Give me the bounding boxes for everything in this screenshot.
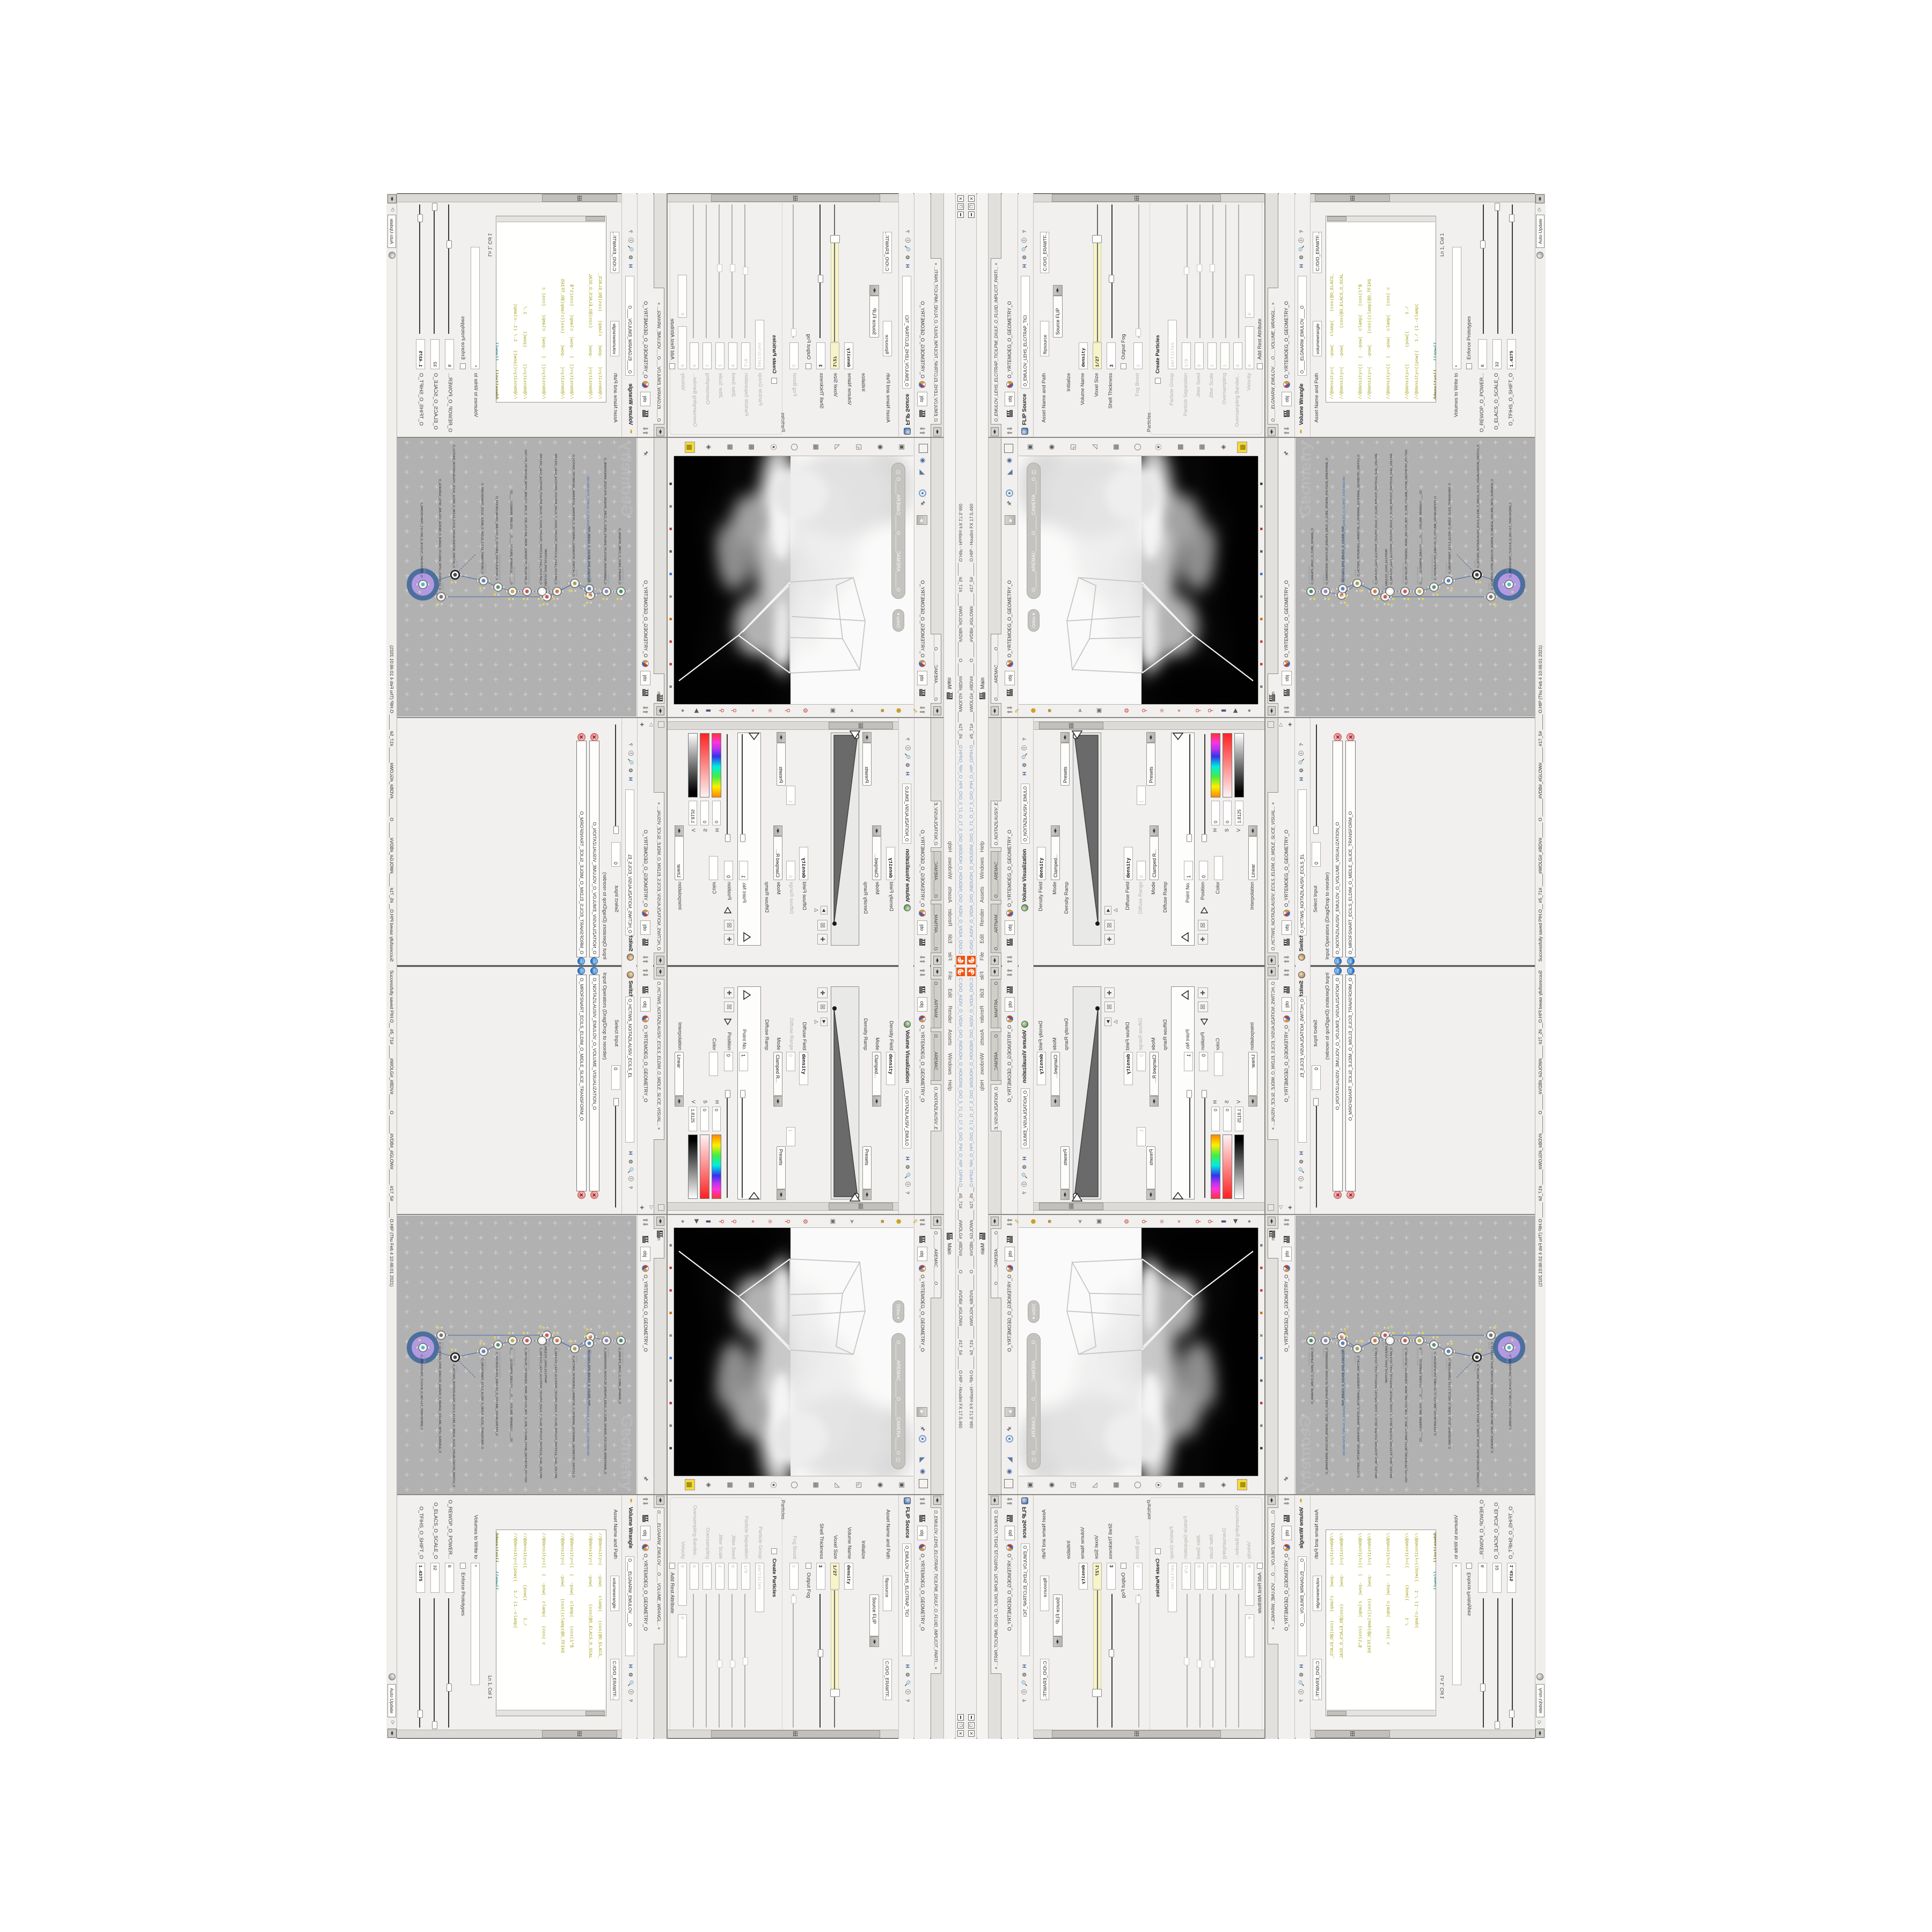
svg-text:Switch: Switch (575, 569, 578, 576)
svg-text:FLIP Source: FLIP Source (543, 1348, 545, 1362)
svg-text:VDB from Polygons: VDB from Polygons (528, 562, 530, 584)
svg-text:Box: Box (1340, 1350, 1342, 1355)
svg-text:Switch: Switch (1474, 560, 1476, 568)
svg-text:O______ELGNARW_EMULOV____O____: O______ELGNARW_EMULOV____O____VOLUME_WRA… (1419, 1348, 1423, 1441)
svg-text:Box: Box (1340, 577, 1342, 582)
svg-text:VolumeVisualizationMix: VolumeVisualizationMix (1431, 554, 1433, 580)
svg-text:O_HCTIWS_NOITAZILAUSIV_ECILS_E: O_HCTIWS_NOITAZILAUSIV_ECILS_ELDIM_O_MID… (1477, 1364, 1480, 1487)
svg-text:O_ECAFRUS_HTIW_EMULOV_EGREM_O_: O_ECAFRUS_HTIW_EMULOV_EGREM_O_MERGE_VOLU… (438, 1342, 441, 1453)
svg-text:VDB from Polygons: VDB from Polygons (1402, 1348, 1404, 1370)
svg-text:VolumeVisualizationMix: VolumeVisualizationMix (499, 554, 501, 580)
svg-text:an_CubeSphere: an_CubeSphere (621, 1348, 624, 1366)
svg-text:O_EMARFERIW_NOGYLOP_EREHPS_EBU: O_EMARFERIW_NOGYLOP_EREHPS_EBUC_O_CUBE_S… (603, 1348, 606, 1474)
svg-text:Clip: Clip (1382, 586, 1385, 590)
svg-text:VolumeVisualizationMix: VolumeVisualizationMix (499, 1352, 501, 1378)
svg-text:O_EMULOV_LEHS_ELCITRAP_TICILPM: O_EMULOV_LEHS_ELCITRAP_TICILPMI_DIULF_O_… (539, 453, 542, 584)
svg-text:Clip: Clip (547, 586, 550, 590)
svg-text:O_EMULOV_LEHS_ELCITRAP_TICILPM: O_EMULOV_LEHS_ELCITRAP_TICILPMI_DIULF_O_… (1390, 453, 1393, 584)
svg-text:O_ECAFRUS_HTIW_EMULOV_EGREM_O_: O_ECAFRUS_HTIW_EMULOV_EGREM_O_MERGE_VOLU… (1491, 1342, 1494, 1453)
svg-text:Clip: Clip (1372, 580, 1374, 584)
svg-text:O_EMULOV_LEHS_ELCITRAP_TICILPM: O_EMULOV_LEHS_ELCITRAP_TICILPMI_DIULF_O_… (1375, 1348, 1378, 1479)
svg-text:Clip: Clip (1382, 1342, 1385, 1346)
svg-text:O______ELGNARW_EMULOV____O____: O______ELGNARW_EMULOV____O____VOLUME_WRA… (509, 491, 513, 584)
svg-text:O_EMARFERIW_NOGYLOP_EREHPS_EBU: O_EMARFERIW_NOGYLOP_EREHPS_EBUC_O_CUBE_S… (1326, 458, 1329, 584)
svg-text:Transform: Transform (484, 562, 487, 574)
svg-text:O_ECAFRUS_HTIW_EMULOV_EGREM_O_: O_ECAFRUS_HTIW_EMULOV_EGREM_O_MERGE_VOLU… (438, 479, 441, 590)
svg-text:O_EMULOV_LEHS_ELCITRAP_TICILPM: O_EMULOV_LEHS_ELCITRAP_TICILPMI_DIULF_O_… (539, 1348, 542, 1479)
svg-text:O_SNOGLOP_YRTEMOEG_MORF_EMULOV: O_SNOGLOP_YRTEMOEG_MORF_EMULOV_BDV_O_VDB… (524, 450, 527, 584)
svg-text:O_ECAFRUS_HTIW_EMULOV_EGREM_O_: O_ECAFRUS_HTIW_EMULOV_EGREM_O_MERGE_VOLU… (1491, 479, 1494, 590)
svg-text:O_HCTIWS_NOITAZILAUSIV_ECILS_E: O_HCTIWS_NOITAZILAUSIV_ECILS_ELDIM_O_MID… (1477, 445, 1480, 568)
svg-text:Merge: Merge (1488, 583, 1490, 590)
svg-text:Merge: Merge (1488, 1342, 1490, 1349)
svg-text:O_EREHPS_EBUC_O_CUBE_SPHERE_O: O_EREHPS_EBUC_O_CUBE_SPHERE_O (618, 1348, 621, 1404)
svg-text:JBO.M03.PETS.TEPOLS_O_SGNIGS_O: JBO.M03.PETS.TEPOLS_O_SGNIGS_O_GENUSS_O_… (586, 1350, 589, 1456)
svg-text:Volume Wrangle: Volume Wrangle (513, 1348, 516, 1366)
svg-text:O_EMULOV_LEHS_ELCITRAP_TICILPM: O_EMULOV_LEHS_ELCITRAP_TICILPMI_DIULF_O_… (1390, 1348, 1393, 1479)
svg-text:O_MROFSNART_TLUSER_O_RESULT_TR: O_MROFSNART_TLUSER_O_RESULT_TRANSFORM_O (1509, 502, 1512, 577)
svg-text:O_NOITAZILAUSIV_EMULOV_O_VOLUM: O_NOITAZILAUSIV_EMULOV_O_VOLUME_VISUALIZ… (495, 1352, 498, 1436)
svg-text:Switch: Switch (1354, 1356, 1357, 1363)
svg-text:FLIP Source: FLIP Source (1387, 570, 1389, 584)
svg-text:O_MROFSNART_ECILS_ELDIM_O_MIDL: O_MROFSNART_ECILS_ELDIM_O_MIDLE_SLICE_TR… (480, 1358, 484, 1449)
svg-text:Switch: Switch (1354, 569, 1357, 576)
svg-text:Transform: Transform (423, 566, 426, 577)
svg-text:O_MROFSNART_TLUSER_O_RESULT_TR: O_MROFSNART_TLUSER_O_RESULT_TRANSFORM_O (420, 502, 423, 577)
svg-text:Switch: Switch (1474, 1364, 1476, 1372)
svg-text:O_NOITAZILAUSIV_EMULOV_O_VOLUM: O_NOITAZILAUSIV_EMULOV_O_VOLUME_VISUALIZ… (1434, 1352, 1437, 1436)
svg-text:Switch: Switch (575, 1356, 578, 1363)
svg-text:O______ELGNARW_EMULOV____O____: O______ELGNARW_EMULOV____O____VOLUME_WRA… (1419, 491, 1423, 584)
svg-text:O_EMULOV_LEHS_ELCITRAP_TICILPM: O_EMULOV_LEHS_ELCITRAP_TICILPMI_DIULF_O_… (1375, 453, 1378, 584)
svg-text:PolyWire: PolyWire (1322, 574, 1325, 584)
svg-text:Merge: Merge (442, 1342, 444, 1349)
svg-text:Transform: Transform (484, 1358, 487, 1370)
svg-text:FLIP Source: FLIP Source (1387, 1348, 1389, 1362)
svg-text:Box: Box (590, 577, 592, 582)
svg-text:an_CubeSphere: an_CubeSphere (1308, 1348, 1311, 1366)
svg-text:O_MROFSNART_ECILS_ELDIM_O_MIDL: O_MROFSNART_ECILS_ELDIM_O_MIDLE_SLICE_TR… (480, 483, 484, 574)
svg-text:Clip: Clip (547, 1342, 550, 1346)
svg-text:an_CubeSphere: an_CubeSphere (621, 566, 624, 584)
svg-text:O_HCTIWS_YRTEMOEG_LANRETXE_O_I: O_HCTIWS_YRTEMOEG_LANRETXE_O_INTERNAL_EX… (1357, 455, 1360, 576)
svg-text:Transform: Transform (423, 1355, 426, 1366)
svg-text:Clip: Clip (558, 1348, 560, 1352)
svg-text:O_HCTIWS_YRTEMOEG_LANRETXE_O_I: O_HCTIWS_YRTEMOEG_LANRETXE_O_INTERNAL_EX… (572, 1356, 575, 1477)
svg-text:O______ELGNARW_EMULOV____O____: O______ELGNARW_EMULOV____O____VOLUME_WRA… (509, 1348, 513, 1441)
svg-text:O_NOITAZILAUSIV_EMULOV_O_VOLUM: O_NOITAZILAUSIV_EMULOV_O_VOLUME_VISUALIZ… (495, 496, 498, 580)
svg-text:PolyWire: PolyWire (607, 574, 610, 584)
svg-text:O_HCTIWS_YRTEMOEG_LANRETXE_O_I: O_HCTIWS_YRTEMOEG_LANRETXE_O_INTERNAL_EX… (1357, 1356, 1360, 1477)
svg-text:O_HCTIWS_NOITAZILAUSIV_ECILS_E: O_HCTIWS_NOITAZILAUSIV_ECILS_ELDIM_O_MID… (452, 445, 455, 568)
svg-text:VDB from Polygons: VDB from Polygons (528, 1348, 530, 1370)
svg-text:O_MROFSNART_TLUSER_O_RESULT_TR: O_MROFSNART_TLUSER_O_RESULT_TRANSFORM_O (420, 1355, 423, 1430)
svg-text:Box: Box (590, 1350, 592, 1355)
svg-text:Clip: Clip (1372, 1348, 1374, 1352)
svg-text:Transform: Transform (1506, 1355, 1509, 1366)
svg-text:O_EMARFERIW_NOGYLOP_EREHPS_EBU: O_EMARFERIW_NOGYLOP_EREHPS_EBUC_O_CUBE_S… (603, 458, 606, 584)
svg-text:Transform: Transform (1445, 1358, 1448, 1370)
svg-text:O_SNOGLOP_YRTEMOEG_MORF_EMULOV: O_SNOGLOP_YRTEMOEG_MORF_EMULOV_BDV_O_VDB… (1405, 450, 1408, 584)
svg-text:O_SNOGLOP_YRTEMOEG_MORF_EMULOV: O_SNOGLOP_YRTEMOEG_MORF_EMULOV_BDV_O_VDB… (1405, 1348, 1408, 1482)
svg-text:JBO.M03.PETS.TEPOLS_O_SGNIGS_O: JBO.M03.PETS.TEPOLS_O_SGNIGS_O_GENUSS_O_… (1343, 1350, 1346, 1456)
svg-text:PolyWire: PolyWire (1322, 1348, 1325, 1358)
svg-text:an_CubeSphere: an_CubeSphere (1308, 566, 1311, 584)
svg-text:O_EREHPS_EBUC_O_CUBE_SPHERE_O: O_EREHPS_EBUC_O_CUBE_SPHERE_O (1311, 528, 1314, 584)
svg-text:Transform: Transform (1506, 566, 1509, 577)
svg-text:VolumeVisualizationMix: VolumeVisualizationMix (1431, 1352, 1433, 1378)
svg-text:Volume Wrangle: Volume Wrangle (513, 566, 516, 584)
svg-text:O_EMULOV_LEHS_ELCITRAP_TICILPM: O_EMULOV_LEHS_ELCITRAP_TICILPMI_DIULF_O_… (554, 453, 557, 584)
svg-text:Volume Wrangle: Volume Wrangle (1416, 566, 1419, 584)
svg-text:O_MROFSNART_TLUSER_O_RESULT_TR: O_MROFSNART_TLUSER_O_RESULT_TRANSFORM_O (1509, 1355, 1512, 1430)
svg-text:O_NOITAZILAUSIV_EMULOV_O_VOLUM: O_NOITAZILAUSIV_EMULOV_O_VOLUME_VISUALIZ… (1434, 496, 1437, 580)
svg-text:PolyWire: PolyWire (607, 1348, 610, 1358)
svg-text:O_MROFSNART_ECILS_ELDIM_O_MIDL: O_MROFSNART_ECILS_ELDIM_O_MIDLE_SLICE_TR… (1448, 483, 1452, 574)
svg-text:Volume Wrangle: Volume Wrangle (1416, 1348, 1419, 1366)
svg-text:FLIP Source: FLIP Source (543, 570, 545, 584)
svg-text:O_SNOGLOP_YRTEMOEG_MORF_EMULOV: O_SNOGLOP_YRTEMOEG_MORF_EMULOV_BDV_O_VDB… (524, 1348, 527, 1482)
svg-text:O_EREHPS_EBUC_O_CUBE_SPHERE_O: O_EREHPS_EBUC_O_CUBE_SPHERE_O (618, 528, 621, 584)
svg-text:O_EMARFERIW_NOGYLOP_EREHPS_EBU: O_EMARFERIW_NOGYLOP_EREHPS_EBUC_O_CUBE_S… (1326, 1348, 1329, 1474)
svg-text:Switch: Switch (456, 560, 458, 568)
svg-text:JBO.M03.PETS.TEPOLS_O_SGNIGS_O: JBO.M03.PETS.TEPOLS_O_SGNIGS_O_GENUSS_O_… (586, 476, 589, 582)
svg-text:O_MROFSNART_ECILS_ELDIM_O_MIDL: O_MROFSNART_ECILS_ELDIM_O_MIDLE_SLICE_TR… (1448, 1358, 1452, 1449)
svg-text:O_HCTIWS_YRTEMOEG_LANRETXE_O_I: O_HCTIWS_YRTEMOEG_LANRETXE_O_INTERNAL_EX… (572, 455, 575, 576)
svg-text:O_EMULOV_LEHS_ELCITRAP_TICILPM: O_EMULOV_LEHS_ELCITRAP_TICILPMI_DIULF_O_… (554, 1348, 557, 1479)
svg-text:Transform: Transform (1445, 562, 1448, 574)
svg-text:O_EREHPS_EBUC_O_CUBE_SPHERE_O: O_EREHPS_EBUC_O_CUBE_SPHERE_O (1311, 1348, 1314, 1404)
svg-text:JBO.M03.PETS.TEPOLS_O_SGNIGS_O: JBO.M03.PETS.TEPOLS_O_SGNIGS_O_GENUSS_O_… (1343, 476, 1346, 582)
svg-text:Switch: Switch (456, 1364, 458, 1372)
svg-text:VDB from Polygons: VDB from Polygons (1402, 562, 1404, 584)
svg-text:O_HCTIWS_NOITAZILAUSIV_ECILS_E: O_HCTIWS_NOITAZILAUSIV_ECILS_ELDIM_O_MID… (452, 1364, 455, 1487)
svg-text:Clip: Clip (558, 580, 560, 584)
svg-text:Merge: Merge (442, 583, 444, 590)
